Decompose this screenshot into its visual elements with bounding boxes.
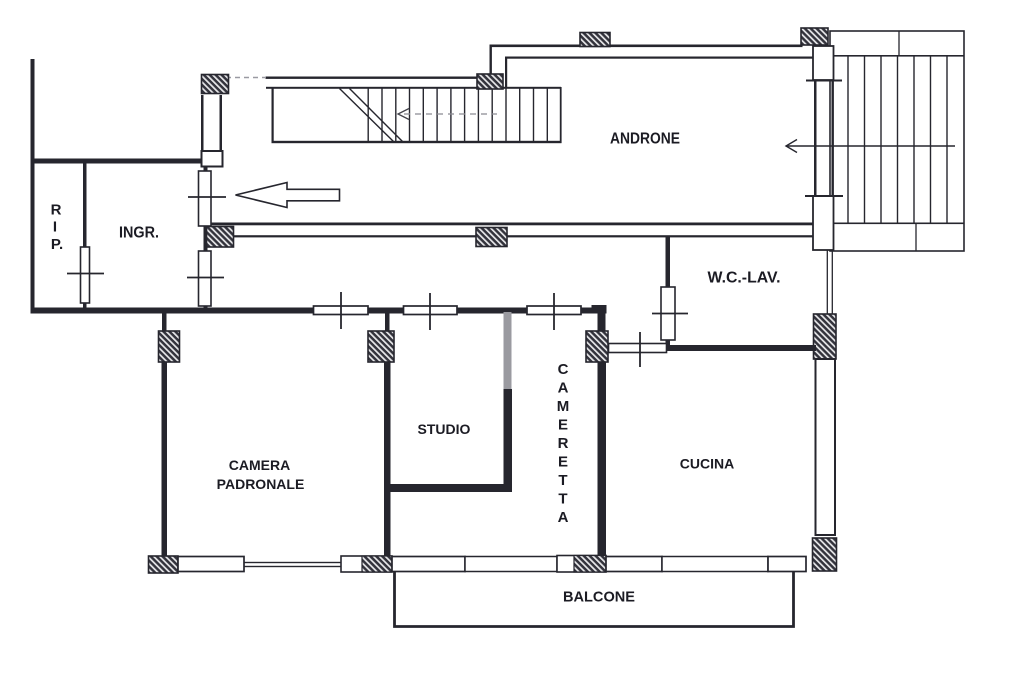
svg-text:R: R bbox=[51, 202, 62, 219]
svg-text:I: I bbox=[53, 219, 57, 236]
svg-text:T: T bbox=[558, 491, 567, 508]
svg-text:R: R bbox=[558, 435, 569, 452]
svg-text:A: A bbox=[558, 509, 569, 526]
svg-text:CAMERA: CAMERA bbox=[229, 457, 290, 473]
svg-text:W.C.-LAV.: W.C.-LAV. bbox=[708, 270, 781, 287]
svg-text:T: T bbox=[558, 472, 567, 489]
svg-text:PADRONALE: PADRONALE bbox=[217, 476, 305, 492]
svg-text:C: C bbox=[558, 361, 569, 378]
svg-text:ANDRONE: ANDRONE bbox=[610, 131, 680, 148]
svg-text:CUCINA: CUCINA bbox=[680, 456, 734, 472]
svg-text:M: M bbox=[557, 398, 570, 415]
svg-text:BALCONE: BALCONE bbox=[563, 589, 635, 606]
svg-text:STUDIO: STUDIO bbox=[418, 421, 471, 437]
svg-text:P.: P. bbox=[51, 236, 63, 253]
svg-text:INGR.: INGR. bbox=[119, 225, 159, 242]
svg-text:A: A bbox=[558, 380, 569, 397]
svg-text:E: E bbox=[558, 454, 568, 471]
svg-text:E: E bbox=[558, 417, 568, 434]
